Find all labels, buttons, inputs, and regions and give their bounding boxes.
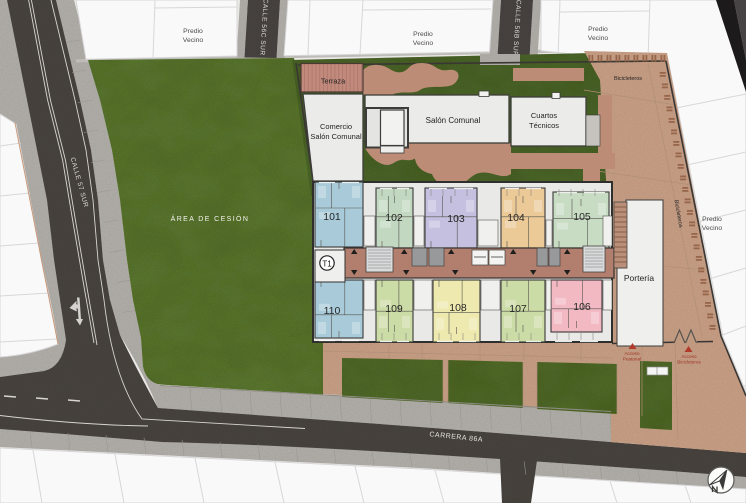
svg-text:Comercio: Comercio <box>320 122 352 131</box>
svg-text:Vecino: Vecino <box>413 40 434 47</box>
svg-text:105: 105 <box>573 211 591 223</box>
svg-text:Acceso: Acceso <box>624 351 640 356</box>
svg-text:Terraza: Terraza <box>321 77 346 86</box>
svg-text:Técnicos: Técnicos <box>529 121 559 130</box>
svg-text:Bicicleteros: Bicicleteros <box>677 360 701 365</box>
svg-text:Portería: Portería <box>624 273 655 283</box>
svg-text:Predio: Predio <box>588 26 608 33</box>
svg-text:Vecino: Vecino <box>588 35 609 42</box>
svg-text:Predio: Predio <box>413 31 433 38</box>
svg-text:Predio: Predio <box>702 216 722 223</box>
svg-text:103: 103 <box>447 213 465 225</box>
svg-text:104: 104 <box>507 212 525 224</box>
svg-text:Vecino: Vecino <box>183 37 204 44</box>
svg-text:ÁREA DE CESIÓN: ÁREA DE CESIÓN <box>171 214 250 223</box>
svg-text:106: 106 <box>573 301 591 313</box>
svg-text:101: 101 <box>323 211 341 223</box>
svg-text:Predio: Predio <box>183 28 203 35</box>
svg-text:110: 110 <box>324 305 341 317</box>
svg-text:Cuartos: Cuartos <box>531 111 558 120</box>
svg-text:Salón Comunal: Salón Comunal <box>426 116 481 125</box>
svg-text:108: 108 <box>449 302 467 314</box>
svg-text:Vecino: Vecino <box>702 225 723 232</box>
svg-text:T1: T1 <box>322 260 332 269</box>
svg-text:Acceso: Acceso <box>681 354 697 359</box>
svg-text:Salón Comunal: Salón Comunal <box>310 132 362 141</box>
svg-text:109: 109 <box>385 303 403 315</box>
svg-text:Peatonal: Peatonal <box>623 357 641 362</box>
svg-text:102: 102 <box>385 212 403 224</box>
svg-text:Bicicleteros: Bicicleteros <box>614 76 642 82</box>
svg-text:107: 107 <box>509 303 527 315</box>
